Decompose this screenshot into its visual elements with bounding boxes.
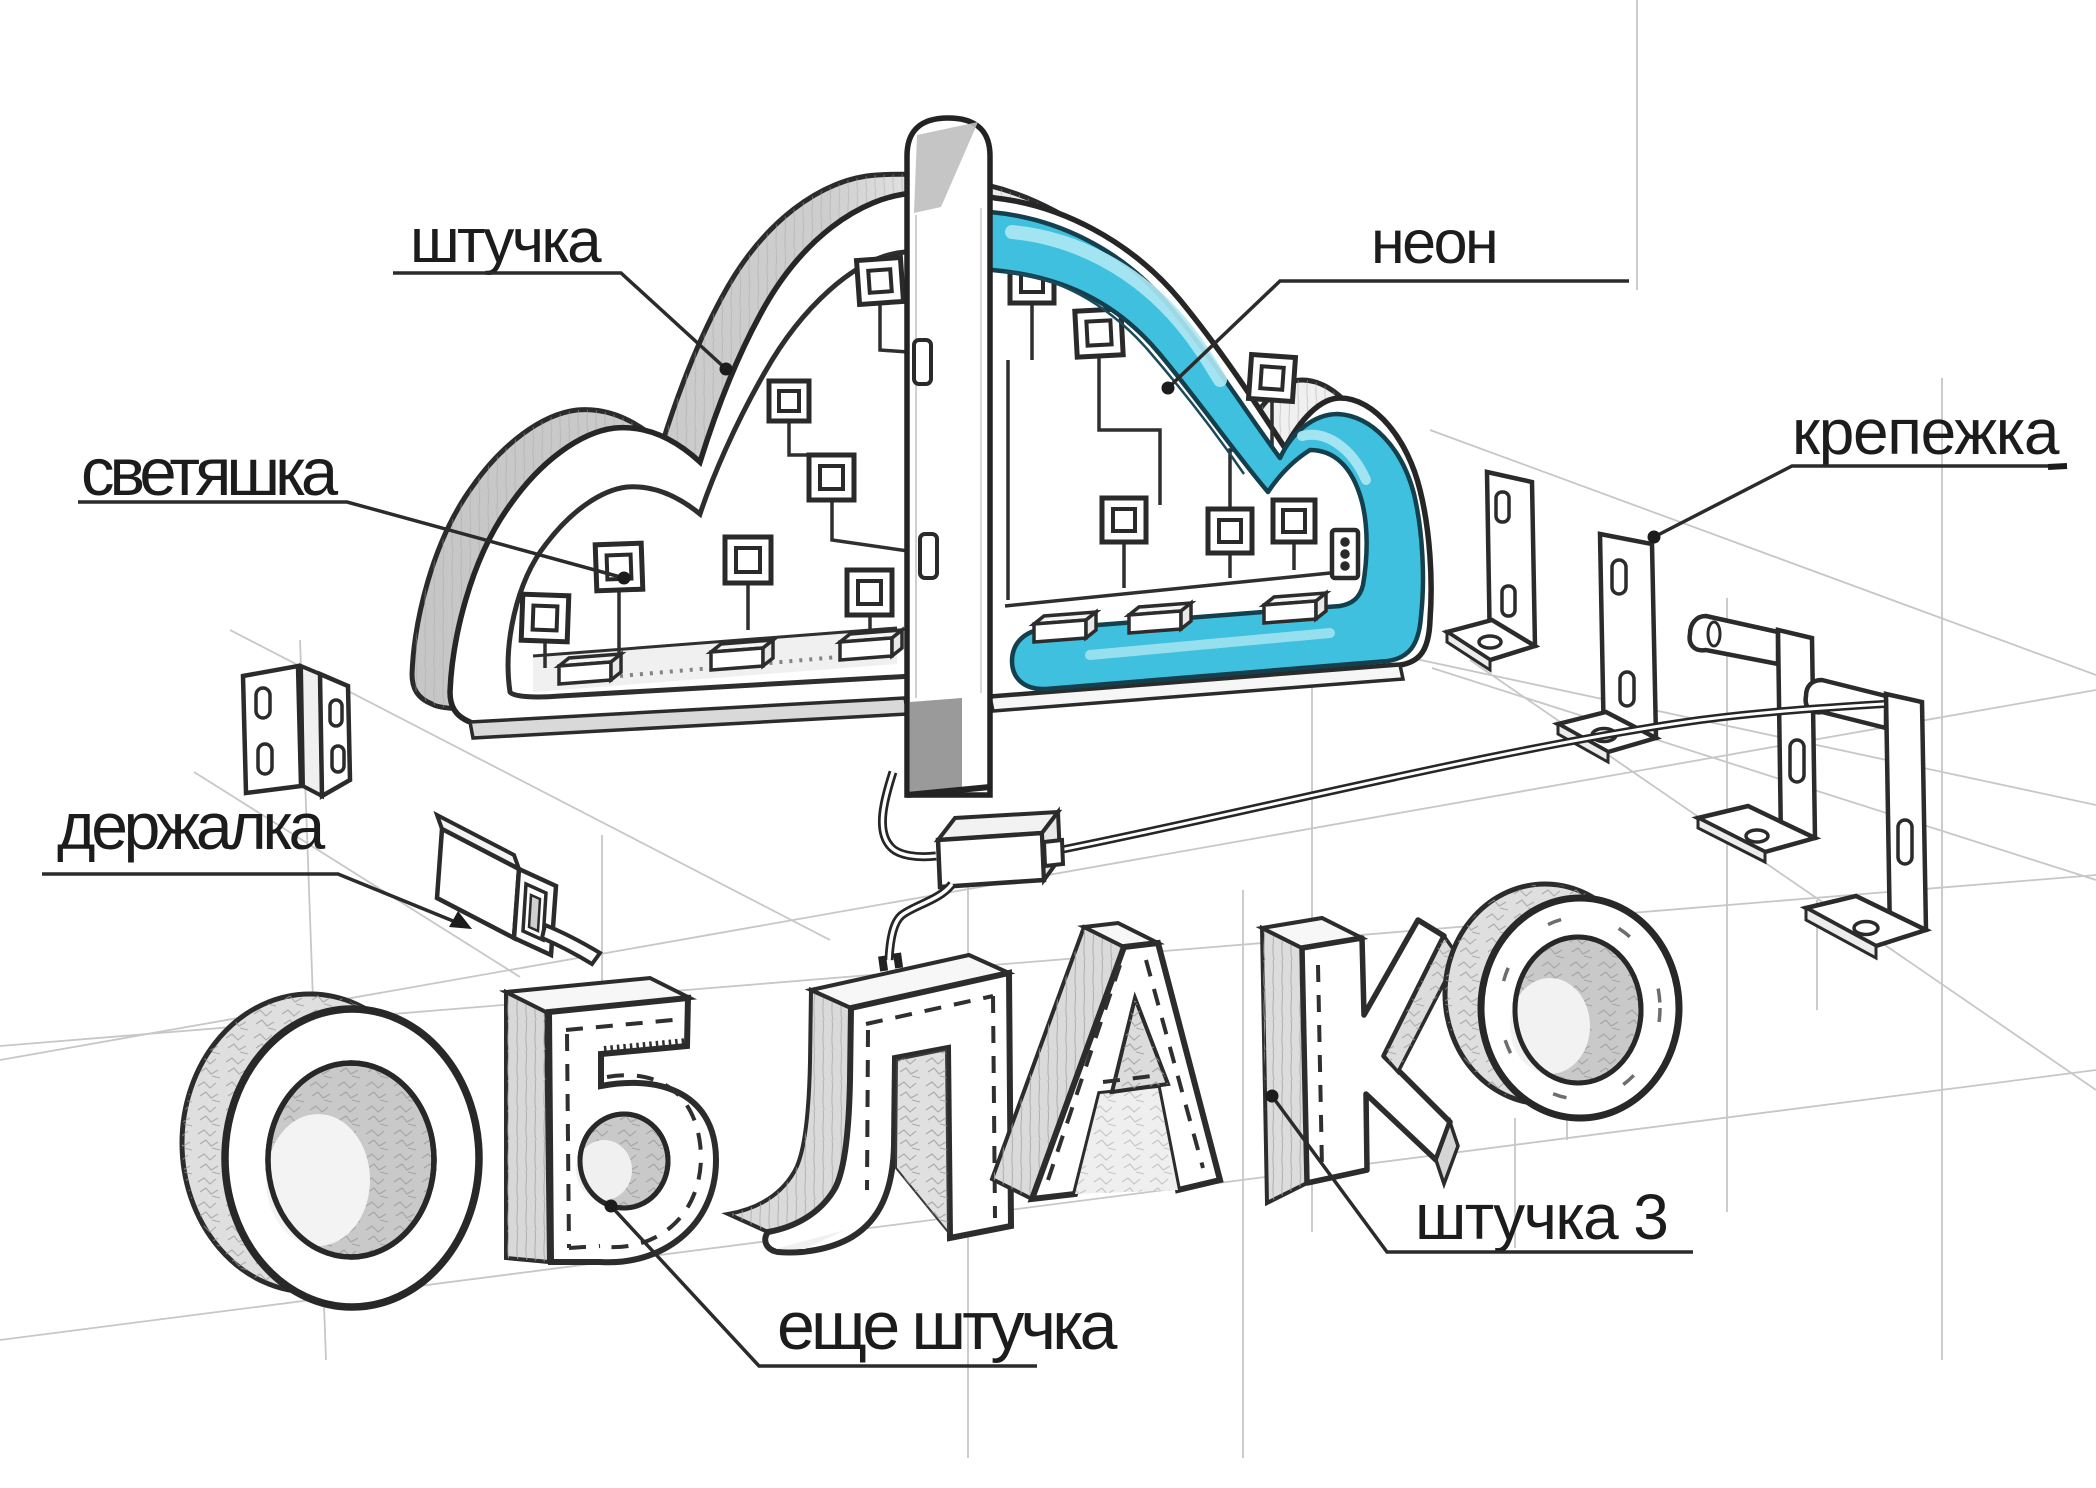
svg-text:светяшка: светяшка: [81, 435, 339, 510]
svg-text:штучка 3: штучка 3: [1415, 1181, 1667, 1253]
svg-text:штучка: штучка: [410, 207, 602, 276]
svg-text:еще штучка: еще штучка: [777, 1288, 1118, 1364]
svg-text:неон: неон: [1371, 208, 1496, 276]
svg-text:крепежка: крепежка: [1792, 396, 2060, 468]
svg-text:держалка: держалка: [57, 789, 326, 863]
